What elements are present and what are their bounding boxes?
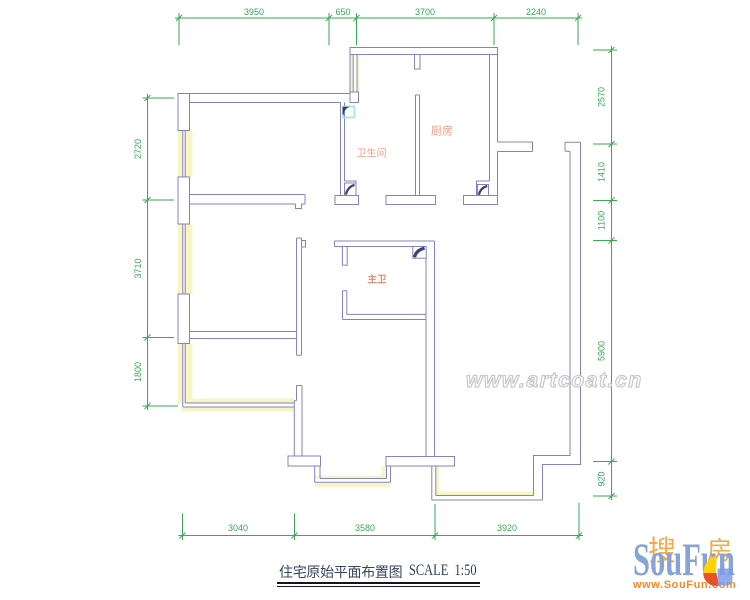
svg-text:1410: 1410 — [597, 162, 607, 182]
svg-text:厨房: 厨房 — [431, 125, 453, 138]
svg-text:3950: 3950 — [244, 7, 264, 17]
svg-text:1100: 1100 — [597, 211, 607, 230]
svg-text:3920: 3920 — [497, 523, 517, 533]
svg-text:3580: 3580 — [355, 523, 375, 533]
svg-text:2570: 2570 — [597, 87, 607, 107]
svg-text:920: 920 — [597, 471, 607, 486]
svg-text:5900: 5900 — [597, 341, 607, 361]
svg-text:1800: 1800 — [133, 362, 143, 382]
svg-text:卫生间: 卫生间 — [357, 147, 387, 160]
svg-text:2720: 2720 — [133, 139, 143, 159]
svg-text:2240: 2240 — [526, 7, 546, 17]
svg-text:3710: 3710 — [133, 258, 143, 278]
svg-text:3040: 3040 — [228, 523, 248, 533]
svg-text:主卫: 主卫 — [368, 274, 388, 286]
svg-text:3700: 3700 — [415, 7, 435, 17]
svg-text:650: 650 — [335, 7, 350, 17]
